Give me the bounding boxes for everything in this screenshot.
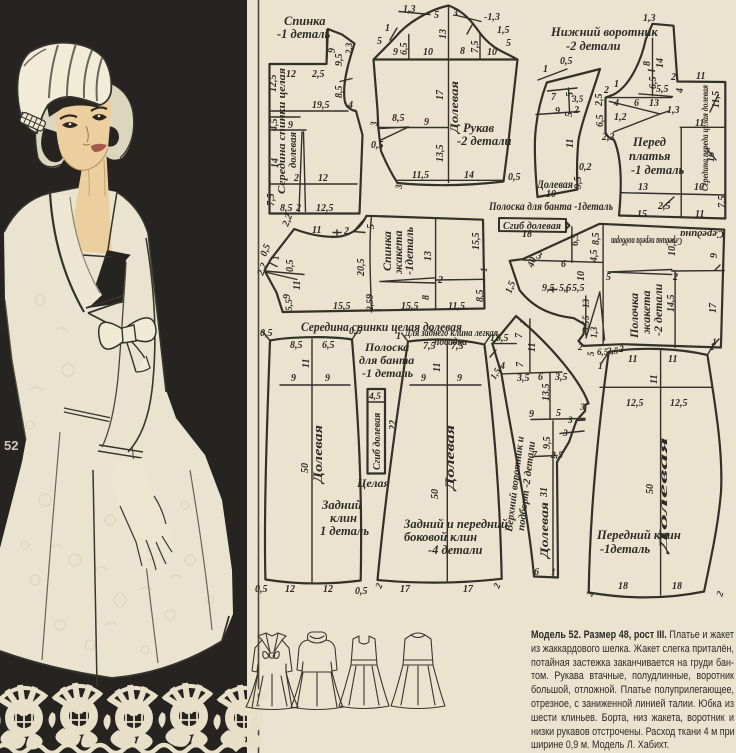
svg-text:Целая: Целая	[356, 476, 390, 490]
svg-text:16: 16	[706, 152, 717, 162]
svg-text:Долевая: Долевая	[449, 81, 461, 134]
svg-text:11: 11	[668, 354, 677, 365]
svg-text:Долевая: Долевая	[539, 502, 551, 559]
svg-text:7,5: 7,5	[451, 341, 464, 352]
svg-text:Рукав: Рукав	[463, 121, 494, 135]
svg-text:12: 12	[323, 584, 333, 595]
svg-text:13: 13	[423, 251, 434, 261]
svg-text:5: 5	[581, 315, 591, 320]
svg-text:6,5: 6,5	[322, 340, 335, 351]
svg-text:11: 11	[628, 354, 637, 365]
svg-text:11: 11	[649, 375, 660, 384]
svg-text:11: 11	[695, 118, 704, 129]
svg-text:5: 5	[586, 351, 596, 356]
svg-text:9: 9	[393, 47, 398, 58]
svg-text:0,5: 0,5	[508, 172, 521, 183]
svg-text:8,5: 8,5	[290, 340, 303, 351]
svg-text:боковой клин: боковой клин	[404, 530, 477, 544]
svg-text:Передний клин: Передний клин	[596, 528, 681, 542]
svg-text:12,5: 12,5	[626, 398, 644, 409]
svg-text:15: 15	[637, 209, 647, 220]
svg-text:0,5: 0,5	[260, 328, 273, 339]
svg-text:6,5: 6,5	[399, 43, 410, 56]
svg-text:9: 9	[529, 409, 534, 420]
svg-text:3: 3	[452, 8, 458, 19]
svg-text:9: 9	[365, 294, 376, 299]
svg-text:2: 2	[343, 226, 349, 237]
svg-text:8: 8	[421, 295, 432, 300]
svg-text:5,5: 5,5	[285, 299, 295, 311]
svg-text:9: 9	[555, 106, 560, 117]
svg-text:2: 2	[577, 343, 583, 353]
svg-text:13: 13	[581, 299, 591, 309]
svg-text:11,5: 11,5	[448, 301, 465, 312]
svg-text:15,5: 15,5	[401, 301, 419, 312]
svg-text:31: 31	[539, 487, 550, 498]
svg-text:5: 5	[434, 10, 439, 21]
svg-text:10: 10	[694, 182, 704, 193]
svg-text:9: 9	[709, 253, 720, 258]
svg-text:2: 2	[672, 272, 678, 283]
svg-text:17: 17	[463, 584, 474, 595]
svg-text:8,5: 8,5	[591, 233, 602, 246]
svg-text:платья: платья	[629, 149, 671, 163]
svg-text:4: 4	[613, 98, 619, 109]
svg-text:2,3: 2,3	[344, 42, 354, 55]
svg-text:11: 11	[565, 139, 576, 148]
svg-text:14: 14	[464, 170, 474, 181]
svg-text:2: 2	[293, 173, 299, 184]
svg-text:3,5: 3,5	[571, 94, 584, 104]
svg-text:12,5: 12,5	[316, 203, 334, 214]
svg-text:0,5: 0,5	[255, 584, 268, 595]
svg-text:12: 12	[318, 173, 328, 184]
svg-text:1,2: 1,2	[614, 112, 627, 123]
svg-text:18: 18	[672, 581, 682, 592]
svg-text:17: 17	[435, 89, 446, 100]
svg-text:50: 50	[300, 463, 311, 473]
svg-text:9: 9	[288, 120, 293, 131]
svg-text:-2 детали: -2 детали	[566, 39, 621, 53]
svg-text:9,5: 9,5	[542, 283, 555, 294]
svg-text:Середина переда подборт: Середина переда подборт	[611, 235, 682, 246]
svg-text:9: 9	[282, 294, 293, 299]
svg-text:1,3: 1,3	[643, 13, 656, 24]
svg-text:2: 2	[295, 203, 301, 214]
svg-text:клин: клин	[330, 511, 357, 525]
svg-text:Сгиб долевая: Сгиб долевая	[372, 413, 383, 470]
svg-text:8: 8	[460, 46, 465, 57]
svg-text:13,5: 13,5	[435, 145, 446, 163]
svg-text:-4 детали: -4 детали	[428, 543, 483, 557]
svg-text:6,5: 6,5	[496, 333, 509, 344]
svg-text:13: 13	[638, 182, 648, 193]
svg-text:11,5: 11,5	[711, 91, 722, 108]
svg-text:-1 деталь: -1 деталь	[362, 366, 414, 380]
svg-text:1: 1	[551, 568, 556, 578]
svg-text:6: 6	[634, 98, 639, 109]
svg-text:3: 3	[562, 429, 568, 439]
svg-text:1,3: 1,3	[403, 4, 416, 15]
svg-text:3: 3	[579, 403, 585, 413]
svg-text:50: 50	[645, 484, 656, 494]
svg-text:3,5: 3,5	[554, 372, 568, 383]
svg-text:Задний: Задний	[321, 498, 362, 512]
svg-text:2: 2	[437, 275, 443, 286]
svg-text:1: 1	[479, 268, 489, 273]
svg-text:8,5: 8,5	[392, 113, 405, 124]
svg-text:1 деталь: 1 деталь	[320, 524, 369, 538]
svg-text:3: 3	[369, 121, 379, 127]
svg-text:11,5: 11,5	[412, 170, 429, 181]
svg-text:5: 5	[366, 224, 377, 229]
svg-text:11: 11	[432, 363, 443, 372]
svg-text:9: 9	[325, 373, 330, 384]
svg-text:2,5: 2,5	[311, 69, 325, 80]
svg-text:2,5: 2,5	[366, 299, 376, 312]
svg-text:Середина спинки целая: Середина спинки целая	[277, 68, 288, 194]
svg-text:-1деталь: -1деталь	[402, 226, 416, 275]
svg-text:8,5: 8,5	[280, 203, 293, 214]
svg-text:12: 12	[285, 584, 295, 595]
svg-text:9,5: 9,5	[573, 177, 584, 190]
svg-text:0,5: 0,5	[349, 326, 362, 337]
svg-text:5: 5	[377, 36, 382, 47]
svg-text:2,3: 2,3	[601, 132, 615, 143]
svg-text:20,5: 20,5	[356, 259, 367, 278]
svg-text:1: 1	[490, 333, 495, 344]
svg-text:6: 6	[538, 372, 543, 383]
svg-text:-1деталь: -1деталь	[600, 542, 650, 556]
svg-text:-1,3: -1,3	[484, 12, 500, 23]
svg-text:11: 11	[301, 359, 312, 368]
svg-text:4,5: 4,5	[368, 392, 381, 402]
svg-text:13: 13	[649, 98, 659, 109]
svg-text:-1 деталь: -1 деталь	[277, 27, 331, 41]
svg-text:1: 1	[385, 23, 390, 34]
svg-text:4: 4	[347, 100, 353, 111]
svg-text:9,5: 9,5	[334, 54, 345, 67]
svg-text:2,5: 2,5	[657, 201, 671, 212]
svg-text:11: 11	[312, 225, 321, 236]
svg-text:10: 10	[487, 47, 497, 58]
svg-text:7,5: 7,5	[470, 41, 481, 54]
svg-text:15,5: 15,5	[471, 233, 482, 251]
svg-text:17: 17	[400, 584, 411, 595]
svg-text:7,5: 7,5	[717, 196, 728, 209]
svg-text:7,5: 7,5	[423, 341, 436, 352]
svg-text:1: 1	[710, 342, 715, 353]
svg-text:14,5: 14,5	[666, 295, 677, 313]
svg-text:14: 14	[655, 58, 666, 68]
svg-text:18: 18	[522, 229, 532, 240]
svg-text:5: 5	[556, 408, 561, 419]
svg-text:5: 5	[506, 38, 511, 49]
svg-text:Середина переда целая долевая: Середина переда целая долевая	[700, 85, 711, 191]
svg-text:5,5: 5,5	[656, 84, 669, 95]
svg-text:6,5: 6,5	[570, 234, 581, 247]
svg-text:Нижний воротник: Нижний воротник	[550, 25, 658, 39]
svg-text:2: 2	[670, 72, 676, 83]
svg-text:50: 50	[430, 489, 441, 499]
svg-text:0,5: 0,5	[560, 56, 573, 67]
svg-text:-2 детали: -2 детали	[457, 134, 512, 148]
svg-text:9: 9	[327, 48, 338, 53]
svg-text:18: 18	[618, 581, 628, 592]
svg-text:9,5: 9,5	[542, 437, 553, 450]
svg-text:Долевая: Долевая	[311, 424, 325, 484]
svg-text:7,5: 7,5	[266, 194, 277, 207]
svg-text:11: 11	[696, 71, 705, 82]
svg-text:8: 8	[642, 61, 653, 66]
svg-text:3: 3	[394, 184, 404, 190]
svg-text:6: 6	[534, 567, 539, 578]
svg-text:11: 11	[292, 281, 303, 290]
svg-text:1,3: 1,3	[589, 326, 599, 338]
svg-text:Спинка: Спинка	[284, 14, 325, 28]
svg-text:10: 10	[546, 189, 556, 200]
svg-text:6: 6	[561, 259, 566, 270]
svg-text:10: 10	[576, 271, 587, 281]
svg-text:52: 52	[4, 438, 18, 453]
svg-text:2: 2	[573, 105, 579, 116]
svg-text:1: 1	[543, 64, 548, 75]
svg-text:-2 детали: -2 детали	[651, 283, 665, 336]
svg-text:4,5: 4,5	[589, 250, 600, 264]
svg-text:2,5: 2,5	[594, 94, 605, 108]
svg-text:Полоска: Полоска	[364, 340, 409, 354]
svg-text:5: 5	[606, 272, 611, 283]
svg-text:9: 9	[424, 117, 429, 128]
svg-text:долевая: долевая	[288, 132, 299, 168]
svg-text:0,5: 0,5	[355, 586, 368, 597]
svg-text:Полоска для банта -1деталь: Полоска для банта -1деталь	[488, 201, 613, 213]
svg-text:9: 9	[291, 373, 296, 384]
svg-text:-1 деталь: -1 деталь	[631, 163, 685, 177]
svg-text:0,5: 0,5	[285, 260, 296, 273]
svg-text:5,5: 5,5	[559, 283, 572, 294]
svg-text:1,3: 1,3	[667, 105, 680, 116]
svg-text:1,5: 1,5	[497, 25, 510, 36]
svg-text:Долевая: Долевая	[443, 424, 457, 491]
svg-text:3: 3	[567, 416, 573, 426]
svg-text:0,5: 0,5	[371, 140, 384, 151]
svg-text:2,5: 2,5	[550, 451, 563, 461]
svg-text:13: 13	[438, 29, 449, 39]
svg-text:19,5: 19,5	[312, 100, 330, 111]
svg-text:4: 4	[675, 88, 686, 94]
svg-text:Перед: Перед	[632, 135, 666, 149]
svg-text:8,5: 8,5	[334, 86, 345, 99]
svg-text:3,5: 3,5	[516, 373, 530, 384]
svg-text:9: 9	[457, 373, 462, 384]
svg-text:6,5: 6,5	[595, 115, 606, 128]
svg-text:11: 11	[527, 343, 538, 352]
svg-text:8,5: 8,5	[475, 290, 486, 303]
svg-text:15,5: 15,5	[333, 301, 351, 312]
svg-text:Сгиб долевая: Сгиб долевая	[503, 220, 561, 232]
svg-text:13,5: 13,5	[541, 384, 552, 402]
svg-text:17: 17	[708, 302, 719, 313]
svg-text:5,5: 5,5	[572, 283, 585, 294]
svg-text:Задний и передний: Задний и передний	[403, 517, 508, 531]
svg-text:Середина: Середина	[680, 228, 724, 239]
svg-text:1: 1	[614, 79, 619, 90]
svg-text:1: 1	[598, 361, 603, 372]
svg-text:12,5: 12,5	[670, 398, 688, 409]
svg-text:1: 1	[271, 256, 281, 261]
svg-text:1: 1	[396, 331, 401, 342]
svg-text:0,2: 0,2	[579, 162, 592, 173]
svg-text:9: 9	[421, 373, 426, 384]
svg-text:10: 10	[423, 47, 433, 58]
svg-text:11: 11	[695, 209, 704, 220]
